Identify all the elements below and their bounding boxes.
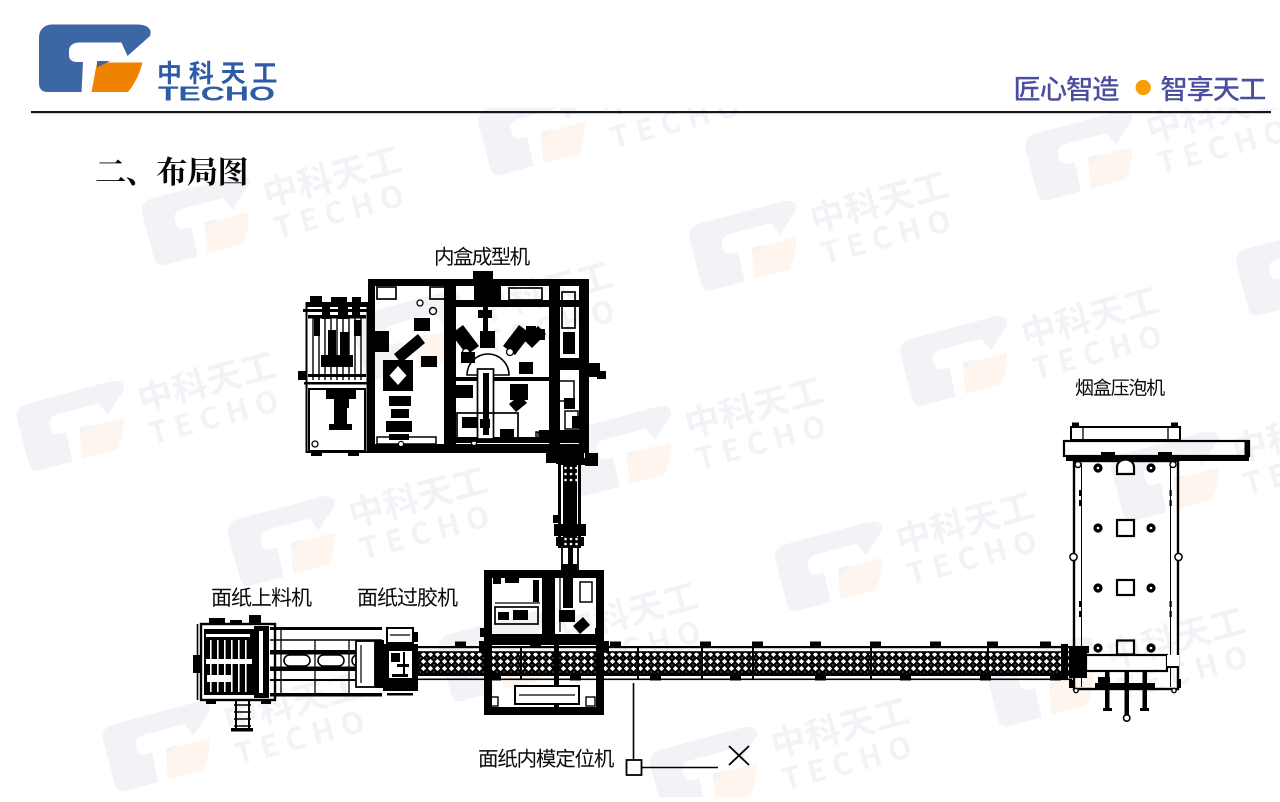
svg-text:TECHO: TECHO [158, 84, 275, 106]
